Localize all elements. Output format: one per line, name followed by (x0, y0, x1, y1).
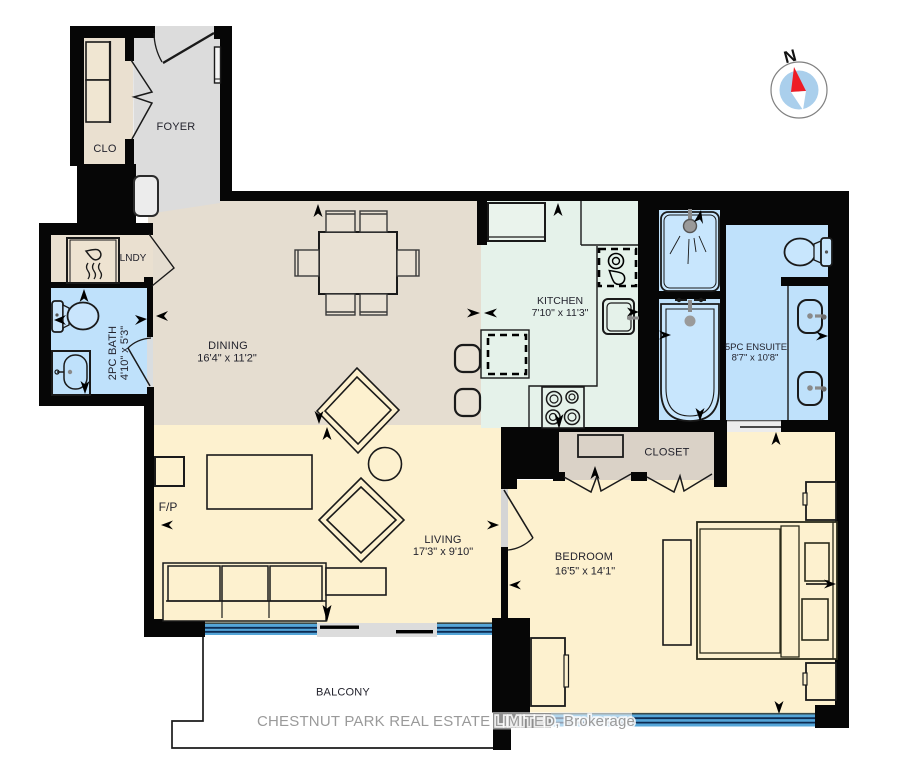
svg-text:DINING: DINING (208, 340, 248, 352)
svg-text:KITCHEN: KITCHEN (537, 295, 583, 307)
svg-text:7'10" x 11'3": 7'10" x 11'3" (532, 307, 589, 319)
svg-text:BALCONY: BALCONY (316, 687, 370, 699)
svg-text:16'4" x 11'2": 16'4" x 11'2" (197, 353, 257, 365)
svg-text:4'10" x 5'3": 4'10" x 5'3" (119, 326, 131, 380)
svg-text:8'7" x 10'8": 8'7" x 10'8" (732, 353, 779, 364)
svg-text:CLO: CLO (93, 143, 116, 155)
svg-text:BEDROOM: BEDROOM (555, 551, 613, 563)
svg-text:17'3" x 9'10": 17'3" x 9'10" (413, 546, 473, 558)
svg-text:LIVING: LIVING (424, 534, 461, 546)
svg-text:F/P: F/P (159, 500, 178, 514)
svg-text:FOYER: FOYER (157, 121, 196, 133)
svg-text:16'5" x 14'1": 16'5" x 14'1" (555, 566, 615, 578)
svg-text:LNDY: LNDY (120, 253, 147, 264)
svg-text:2PC BATH: 2PC BATH (107, 326, 119, 381)
svg-text:5PC ENSUITE: 5PC ENSUITE (725, 342, 787, 353)
svg-text:CLOSET: CLOSET (644, 447, 689, 459)
svg-text:CHESTNUT PARK REAL ESTATE LIMI: CHESTNUT PARK REAL ESTATE LIMITED, Broke… (257, 713, 635, 730)
